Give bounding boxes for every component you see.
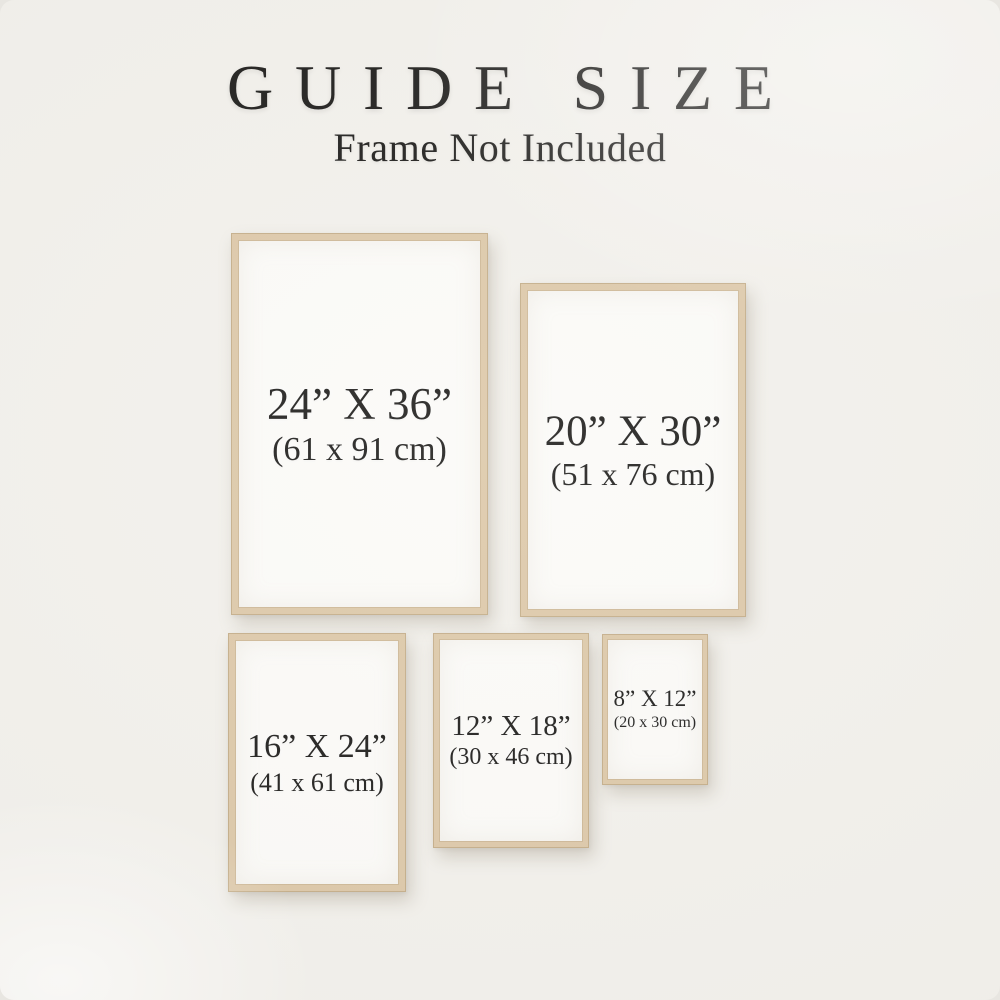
frame-12x18-size-cm: (30 x 46 cm) [449,745,572,770]
frame-16x24-size-inches: 16” X 24” [247,729,387,765]
frame-16x24: 16” X 24” (41 x 61 cm) [228,633,406,892]
page-title: GUIDE SIZE [0,56,1000,120]
frame-20x30-size-inches: 20” X 30” [545,409,722,454]
frame-16x24-size-cm: (41 x 61 cm) [250,769,384,796]
frame-20x30-size-cm: (51 x 76 cm) [551,458,715,492]
frame-20x30: 20” X 30” (51 x 76 cm) [520,283,746,617]
page-subtitle: Frame Not Included [0,128,1000,168]
frame-24x36-size-inches: 24” X 36” [267,381,452,428]
frame-12x18: 12” X 18” (30 x 46 cm) [433,633,589,848]
frame-8x12-size-cm: (20 x 30 cm) [614,715,696,732]
frame-8x12-size-inches: 8” X 12” [613,687,696,711]
frame-24x36-size-cm: (61 x 91 cm) [272,432,447,468]
size-guide-poster: GUIDE SIZE Frame Not Included 24” X 36” … [0,0,1000,1000]
frame-8x12: 8” X 12” (20 x 30 cm) [602,634,708,785]
frame-24x36: 24” X 36” (61 x 91 cm) [231,233,488,615]
header: GUIDE SIZE Frame Not Included [0,56,1000,168]
frame-12x18-size-inches: 12” X 18” [451,711,570,741]
